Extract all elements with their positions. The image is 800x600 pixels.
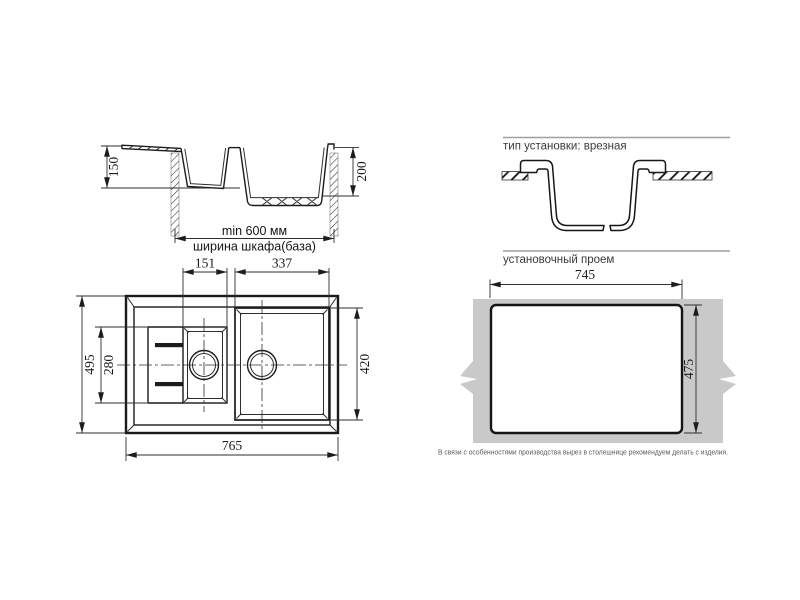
opening-title: установочный проем [503,254,614,266]
dim-small-bowl-length: 280 [101,355,116,376]
sink-technical-drawing: 150 200 min 600 мм ширина шкафа(база) [0,0,800,600]
small-bowl-profile-inner [185,148,226,185]
dim-main-bowl-width: 337 [272,256,293,271]
cabinet-wall-right-hatch [330,153,338,236]
dim-small-bowl-width: 151 [195,256,215,271]
dim-overall-width: 765 [222,438,243,453]
sink-technical-drawing-page: 150 200 min 600 мм ширина шкафа(база) [0,0,800,600]
cutout-section: установочный проем 745 475 В связи с осо… [438,251,736,457]
drainboard-rib-bottom [155,382,183,386]
drainboard-profile [122,145,181,151]
production-note: В связи с особенностями производства выр… [438,448,728,457]
top-view: 151 337 495 280 420 765 [76,256,372,462]
min-cabinet-width-label: min 600 мм [222,224,287,238]
main-bowl-outer [235,308,329,420]
sink-outer-rim [126,296,338,433]
main-bowl-inner [241,314,324,415]
dim-small-bowl-depth: 150 [106,157,121,178]
drainboard-rib-top [155,343,183,347]
side-view: 150 200 min 600 мм ширина шкафа(база) [101,144,369,254]
dim-overall-depth: 495 [82,354,97,375]
sink-section-right-half [610,161,666,231]
dim-cutout-width: 745 [575,267,596,282]
main-bowl-profile-outer [240,147,328,205]
sink-inner-rim [134,307,330,425]
installation-type-section: тип установки: врезная [502,138,730,231]
main-bowl-bottom-crosshatch [262,198,317,206]
dim-main-bowl-length: 420 [357,354,372,375]
rim-corner-chamfers [128,298,337,432]
right-rim-profile [328,144,334,150]
cabinet-width-label: ширина шкафа(база) [193,240,316,254]
sink-section-left-half [521,161,605,231]
cabinet-wall-left-hatch [171,153,179,236]
main-bowl-profile-inner [243,148,324,198]
cutout-opening [491,305,682,433]
installation-type-title: тип установки: врезная [503,141,627,153]
dim-cutout-height: 475 [681,359,696,380]
dim-main-bowl-depth: 200 [354,161,369,182]
